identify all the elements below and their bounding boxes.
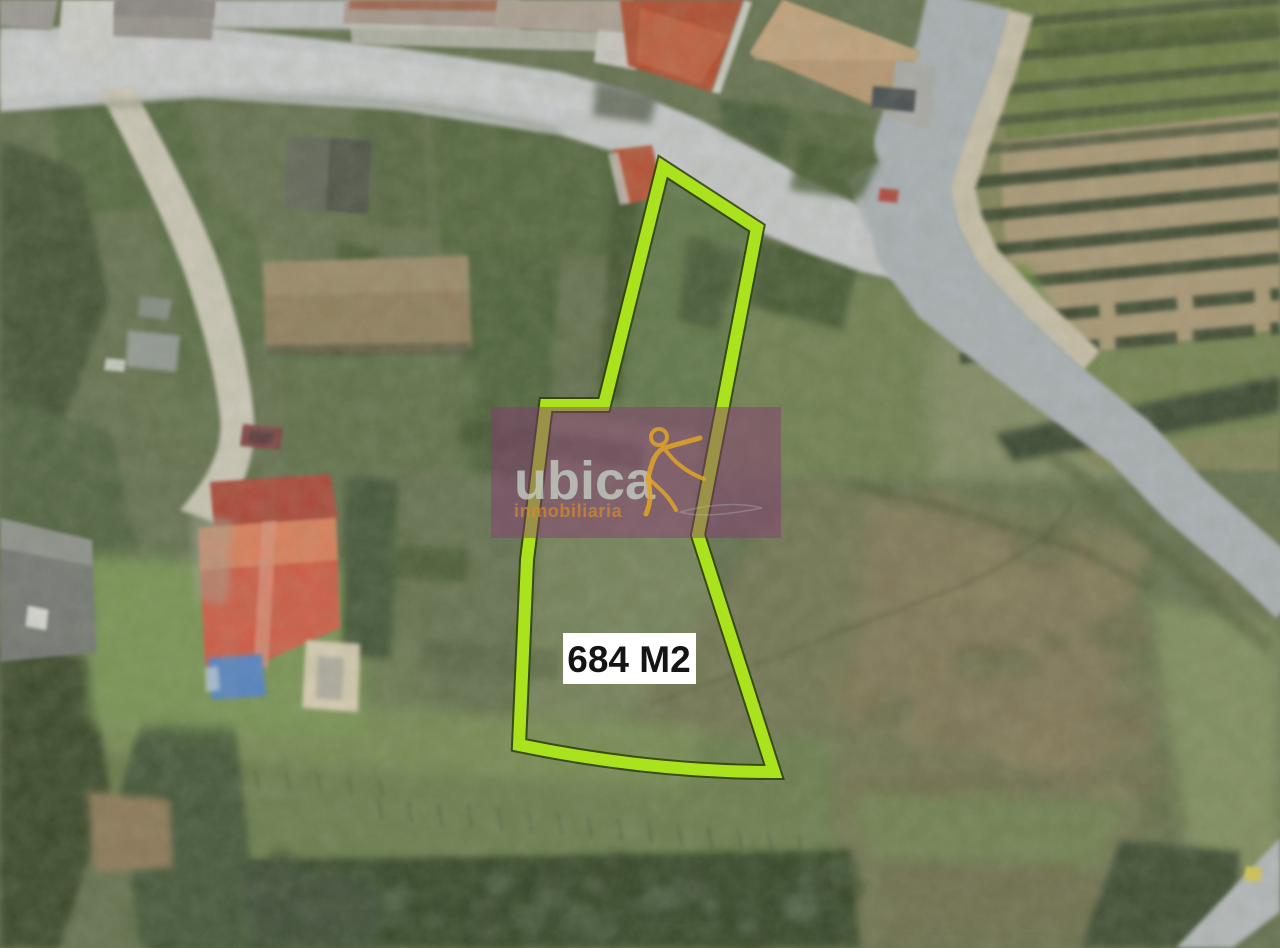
svg-text:684 M2: 684 M2 [567,639,690,680]
svg-text:inmobiliaria: inmobiliaria [514,501,623,521]
